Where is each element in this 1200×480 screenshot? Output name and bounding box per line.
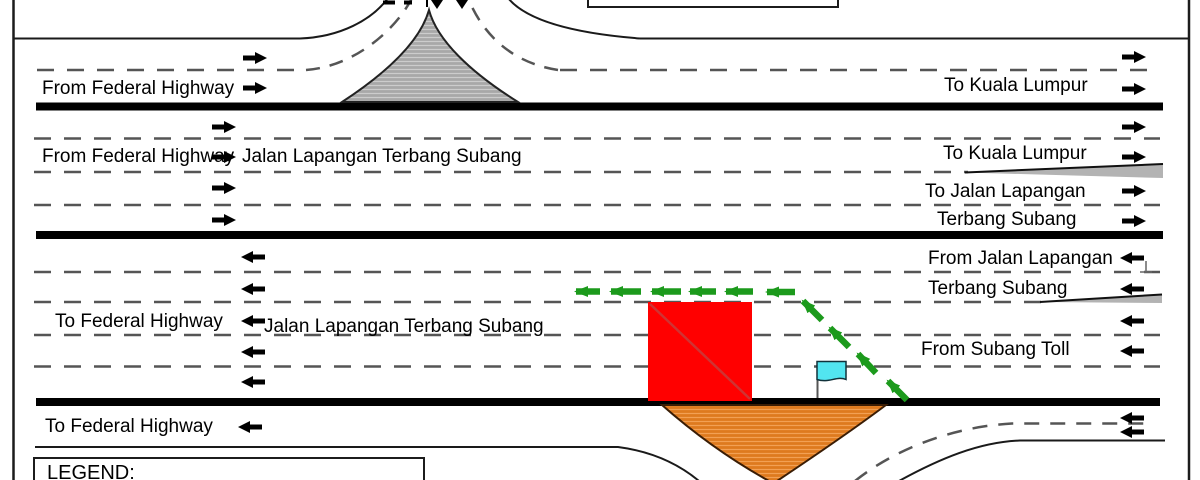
closure-marker xyxy=(648,302,752,401)
title-box-cropped xyxy=(587,0,839,8)
left-arrow-icon xyxy=(1120,426,1144,438)
label-road3-terbang-subang: Terbang Subang xyxy=(928,278,1067,300)
label-road4-to-federal-highway: To Federal Highway xyxy=(45,416,213,438)
left-arrow-icon xyxy=(1120,283,1144,295)
right-arrow-icon xyxy=(243,82,267,94)
south-trumpet-ramp xyxy=(662,405,1148,480)
left-arrow-icon xyxy=(241,376,265,388)
flag-icon xyxy=(817,362,846,381)
down-arrow-icon xyxy=(456,0,468,9)
left-arrow-icon xyxy=(1120,345,1144,357)
right-arrow-icon xyxy=(212,182,236,194)
bar-2 xyxy=(36,231,1163,239)
road-schematic xyxy=(0,0,1200,480)
down-arrow-icon xyxy=(431,0,443,9)
label-road3-street-name: Jalan Lapangan Terbang Subang xyxy=(264,316,544,338)
survey-mark xyxy=(1140,261,1152,272)
right-arrow-icon xyxy=(212,121,236,133)
right-arrow-icon xyxy=(212,214,236,226)
right-arrow-icon xyxy=(1122,51,1146,63)
north-trumpet-ramp xyxy=(300,0,640,102)
gore-area-south xyxy=(662,405,886,480)
label-road2-terbang-subang: Terbang Subang xyxy=(937,209,1076,231)
left-arrow-icon xyxy=(238,421,262,433)
left-arrow-icon xyxy=(241,315,265,327)
label-road3-from-subang-toll: From Subang Toll xyxy=(921,339,1070,361)
label-road1-from-federal-highway: From Federal Highway xyxy=(42,78,234,100)
right-arrow-icon xyxy=(1122,185,1146,197)
diversion-arrow-icon xyxy=(888,381,907,400)
right-arrow-icon xyxy=(1122,215,1146,227)
right-arrow-icon xyxy=(243,52,267,64)
label-road3-from-jalan-lapangan: From Jalan Lapangan xyxy=(928,248,1113,270)
left-arrow-icon xyxy=(1120,315,1144,327)
gore-area-north xyxy=(342,10,518,102)
bar-3 xyxy=(36,398,1160,406)
left-arrow-icon xyxy=(241,346,265,358)
ramp-dashed-curve-right xyxy=(468,0,558,70)
left-arrow-icon xyxy=(1120,412,1144,424)
ramp-dashed-curve-south xyxy=(855,424,1148,480)
label-road2-to-kuala-lumpur: To Kuala Lumpur xyxy=(943,143,1087,165)
right-arrow-icon xyxy=(1122,151,1146,163)
ramp-outer-curve-left xyxy=(300,0,388,39)
diversion-arrow-icon xyxy=(830,328,849,347)
traffic-diversion-diagram: From Federal Highway To Kuala Lumpur Fro… xyxy=(0,0,1200,480)
flag-marker xyxy=(817,361,846,398)
label-road1-to-kuala-lumpur: To Kuala Lumpur xyxy=(944,75,1088,97)
right-arrow-icon xyxy=(1122,121,1146,133)
bar-1 xyxy=(36,103,1163,111)
right-arrow-icon xyxy=(1122,83,1146,95)
label-road2-street-name: Jalan Lapangan Terbang Subang xyxy=(242,146,522,168)
left-arrow-icon xyxy=(1120,252,1144,264)
label-road2-from-federal-highway: From Federal Highway xyxy=(42,146,234,168)
diversion-arrow-icon xyxy=(803,301,822,320)
sheet-borders xyxy=(14,0,1190,480)
left-arrow-icon xyxy=(241,251,265,263)
label-road3-to-federal-highway: To Federal Highway xyxy=(55,311,223,333)
legend-title: LEGEND: xyxy=(47,462,423,480)
left-arrow-icon xyxy=(241,283,265,295)
label-road2-to-jalan-lapangan: To Jalan Lapangan xyxy=(925,181,1086,203)
legend-box: LEGEND: xyxy=(33,457,425,480)
road4-bottom-edge-right xyxy=(899,441,1165,480)
diversion-arrow-icon xyxy=(858,354,876,373)
